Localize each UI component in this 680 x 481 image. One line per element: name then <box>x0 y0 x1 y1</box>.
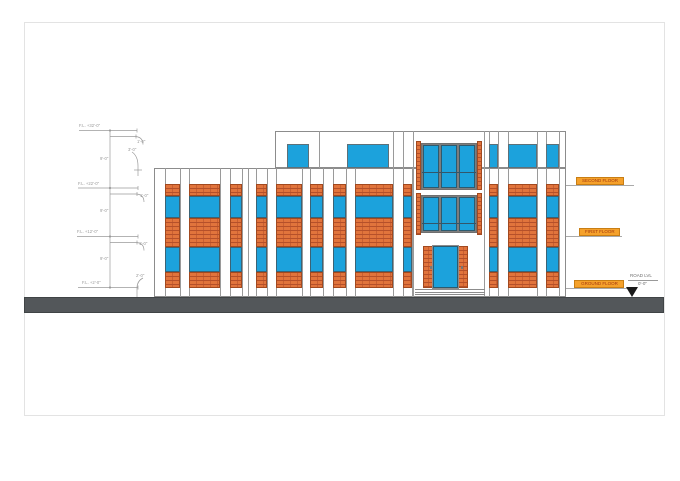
level-label-second: F.L. +22'-0" <box>78 182 99 186</box>
window-band <box>310 247 323 272</box>
window-band <box>230 196 242 218</box>
dim-slab-offset: 1'-0" <box>140 194 148 198</box>
floor-tag-label: GROUND FLOOR <box>581 282 618 287</box>
floor-tag-ground-floor: GROUND FLOOR <box>574 280 624 288</box>
pilaster-line <box>537 131 538 297</box>
brick-band <box>256 272 267 288</box>
brick-band <box>276 218 302 247</box>
tower-brick-strip <box>477 141 482 190</box>
brick-band <box>230 272 242 288</box>
brick-band <box>508 184 537 196</box>
window-band <box>546 247 559 272</box>
brick-band <box>508 218 537 247</box>
brick-band <box>189 272 220 288</box>
tag-leader-line <box>566 288 632 289</box>
window-pane <box>441 145 457 188</box>
level-label-first: F.L. +12'-0" <box>77 230 98 234</box>
tag-leader-line <box>566 236 622 237</box>
brick-band <box>489 218 498 247</box>
window-band <box>276 247 302 272</box>
facade-bay <box>403 184 412 288</box>
brick-band <box>333 184 346 196</box>
window-transom-line <box>422 172 476 173</box>
brick-band <box>355 272 393 288</box>
tower-brick-strip <box>477 193 482 235</box>
brick-band <box>403 184 412 196</box>
dim-story-height: 9'-0" <box>100 209 108 213</box>
entrance-door <box>433 246 458 288</box>
brick-band <box>276 184 302 196</box>
brick-band <box>508 272 537 288</box>
tower-edge-line <box>413 131 414 297</box>
window-band <box>189 247 220 272</box>
window-band <box>256 247 267 272</box>
pilaster-line <box>346 168 347 297</box>
facade-bay <box>508 184 537 288</box>
pilaster-line <box>180 168 181 297</box>
facade-bay <box>189 184 220 288</box>
dim-plinth-offset: 2'-0" <box>136 274 144 278</box>
brick-band <box>310 272 323 288</box>
upper-window <box>287 144 309 168</box>
facade-bay <box>355 184 393 288</box>
window-band <box>310 196 323 218</box>
window-band <box>403 196 412 218</box>
dim-slab-offset: 1'-0" <box>139 242 147 246</box>
window-band <box>355 247 393 272</box>
brick-band <box>403 272 412 288</box>
upper-window <box>508 144 537 168</box>
brick-band <box>546 272 559 288</box>
brick-band <box>230 184 242 196</box>
facade-bay <box>276 184 302 288</box>
brick-band <box>276 272 302 288</box>
brick-band <box>310 184 323 196</box>
window-pane <box>423 197 439 231</box>
facade-bay <box>489 184 498 288</box>
floor-tag-first-floor: FIRST FLOOR <box>579 228 620 236</box>
facade-bay <box>230 184 242 288</box>
door-handle <box>461 266 463 269</box>
brick-band <box>230 218 242 247</box>
tower-edge-line <box>484 131 485 297</box>
pilaster-line <box>242 168 243 297</box>
brick-band <box>333 272 346 288</box>
entrance-step-line <box>415 292 485 293</box>
dimension-lines <box>70 120 170 305</box>
floor-tag-second-floor: SECOND FLOOR <box>576 177 624 185</box>
dim-story-height: 9'-0" <box>100 157 108 161</box>
upper-window <box>489 144 498 168</box>
pilaster-line <box>323 168 324 297</box>
pilaster-line <box>267 168 268 297</box>
brick-band <box>310 218 323 247</box>
brick-band <box>355 218 393 247</box>
level-label-roof: F.L. +32'-0" <box>79 124 100 128</box>
window-band <box>230 247 242 272</box>
facade-bay <box>256 184 267 288</box>
pilaster-line <box>220 168 221 297</box>
window-band <box>546 196 559 218</box>
brick-band <box>489 272 498 288</box>
tower-window-second-floor <box>421 143 477 190</box>
facade-bay <box>310 184 323 288</box>
level-label-ground: F.L. +2'-0" <box>82 281 101 285</box>
brick-band <box>333 218 346 247</box>
brick-band <box>355 184 393 196</box>
dim-story-height: 9'-0" <box>100 257 108 261</box>
window-band <box>508 196 537 218</box>
entrance-step-line <box>415 289 485 290</box>
brick-band <box>403 218 412 247</box>
elevation-drawing: F.L. +32'-0" F.L. +22'-0" F.L. +12'-0" F… <box>0 0 680 481</box>
road-level-marker-icon <box>626 287 638 297</box>
road-level-value: 0'-0" <box>638 282 647 287</box>
pilaster-line <box>498 131 499 297</box>
dim-slab-offset: 1'-0" <box>137 140 145 144</box>
window-band <box>256 196 267 218</box>
window-pane <box>459 145 475 188</box>
window-pane <box>459 197 475 231</box>
window-band <box>355 196 393 218</box>
window-band <box>189 196 220 218</box>
pilaster-line <box>248 168 249 297</box>
pilaster-line <box>302 168 303 297</box>
brick-band <box>189 218 220 247</box>
entrance-step-line <box>415 294 485 295</box>
tower-window-first-floor <box>421 195 477 233</box>
window-pane <box>423 145 439 188</box>
window-band <box>489 196 498 218</box>
brick-band <box>546 218 559 247</box>
parapet-joint-line <box>393 131 394 168</box>
upper-window <box>546 144 559 168</box>
pilaster-line <box>393 168 394 297</box>
brick-band <box>256 184 267 196</box>
parapet-joint-line <box>403 131 404 168</box>
brick-band <box>489 184 498 196</box>
brick-band <box>546 184 559 196</box>
window-transom-line <box>422 223 476 224</box>
tag-leader-line <box>566 185 634 186</box>
door-handle <box>430 266 432 269</box>
facade-bay <box>546 184 559 288</box>
window-band <box>489 247 498 272</box>
brick-band <box>189 184 220 196</box>
floor-tag-label: SECOND FLOOR <box>582 179 618 184</box>
brick-band <box>256 218 267 247</box>
road-level-label: ROAD LVL <box>630 274 652 279</box>
window-pane <box>441 197 457 231</box>
facade-bay <box>333 184 346 288</box>
window-band <box>333 196 346 218</box>
upper-window <box>347 144 389 168</box>
window-band <box>403 247 412 272</box>
parapet-joint-line <box>319 131 320 168</box>
dim-parapet-offset: 3'-0" <box>128 148 136 152</box>
road-level-underline <box>628 280 658 281</box>
floor-tag-label: FIRST FLOOR <box>585 230 615 235</box>
pilaster-line <box>559 131 560 297</box>
window-band <box>276 196 302 218</box>
entrance-brick-strip <box>458 246 468 288</box>
window-band <box>333 247 346 272</box>
window-band <box>508 247 537 272</box>
